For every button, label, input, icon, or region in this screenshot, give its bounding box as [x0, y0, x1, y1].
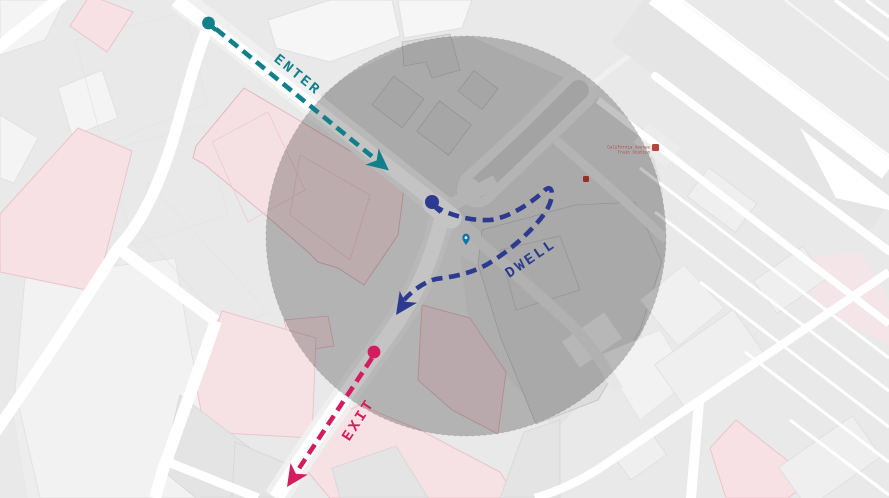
svg-text:California Avenue: California Avenue [607, 146, 650, 151]
svg-text:Train Station: Train Station [617, 151, 650, 156]
